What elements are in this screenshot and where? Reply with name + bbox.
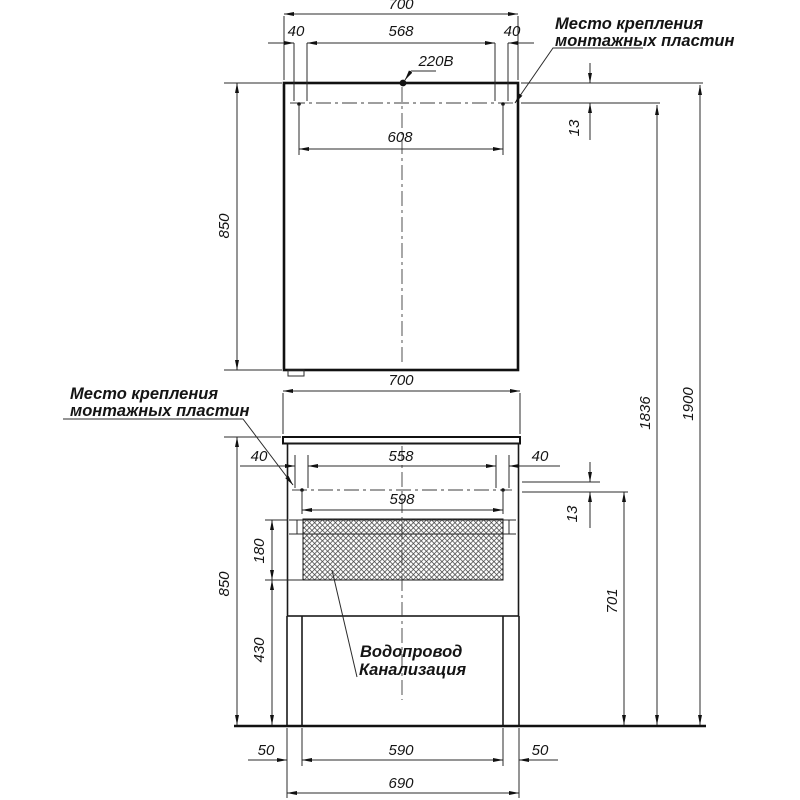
mounting-label-top-line1: Место крепления bbox=[555, 15, 703, 33]
dim-label-opening-height: 180 bbox=[251, 538, 268, 564]
mounting-label-left-line2: монтажных пластин bbox=[70, 402, 250, 420]
power-outlet-point bbox=[400, 80, 407, 87]
dim-label-leg-span: 590 bbox=[388, 742, 414, 759]
installation-drawing: 700 40 568 40 220В 608 850 13 Место креп… bbox=[0, 0, 800, 800]
dim-label-height-total: 1900 bbox=[680, 387, 697, 421]
mounting-label-top-line2: монтажных пластин bbox=[555, 32, 735, 50]
dim-label-vanity-plate-outer: 598 bbox=[389, 491, 415, 508]
dim-label-height-to-plates: 1836 bbox=[637, 396, 654, 430]
dim-label-below-opening: 430 bbox=[251, 637, 268, 663]
dim-label-vanity-plate-left: 40 bbox=[251, 448, 268, 465]
dim-label-vanity-plate-depth: 13 bbox=[564, 505, 581, 522]
dim-label-vanity-width: 700 bbox=[388, 372, 414, 389]
plumbing-access-hatch bbox=[303, 519, 503, 580]
dim-label-vanity-plate-right: 40 bbox=[532, 448, 549, 465]
dim-label-mirror-plate-depth: 13 bbox=[566, 119, 583, 136]
plumbing-label-line2: Канализация bbox=[359, 661, 466, 679]
dim-label-mirror-plate-left: 40 bbox=[288, 23, 305, 40]
plumbing-label-line1: Водопровод bbox=[360, 643, 462, 661]
countertop bbox=[283, 437, 520, 444]
dim-label-mirror-plate-outer: 608 bbox=[387, 129, 413, 146]
dim-label-plate-to-floor: 701 bbox=[604, 588, 621, 613]
dim-label-vanity-height: 850 bbox=[216, 571, 233, 597]
dim-label-mirror-height: 850 bbox=[216, 213, 233, 239]
dim-label-vanity-plate-span: 558 bbox=[388, 448, 414, 465]
mounting-label-left-line1: Место крепления bbox=[70, 385, 218, 403]
power-label: 220В bbox=[417, 53, 453, 70]
dim-label-mirror-width: 700 bbox=[388, 0, 414, 13]
dim-label-mirror-plate-span: 568 bbox=[388, 23, 414, 40]
dim-label-mirror-plate-right: 40 bbox=[504, 23, 521, 40]
dim-label-leg-right: 50 bbox=[532, 742, 549, 759]
dim-label-base-width: 690 bbox=[388, 775, 414, 792]
dim-label-leg-left: 50 bbox=[258, 742, 275, 759]
